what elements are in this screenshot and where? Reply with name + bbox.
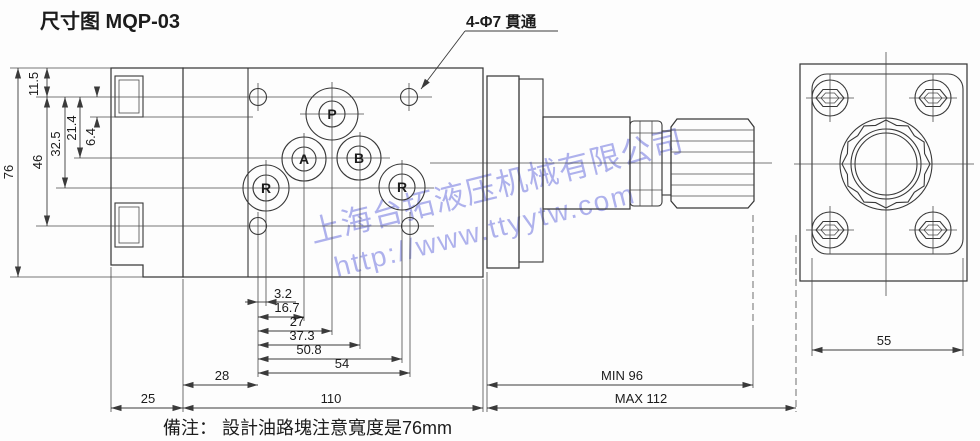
dim-76: 76 (1, 165, 16, 179)
dim-46: 46 (30, 155, 45, 169)
drawing-title: 尺寸图 MQP-03 (40, 10, 180, 33)
dim-11-5: 11.5 (26, 72, 41, 96)
dim-min-96: MIN 96 (601, 368, 643, 383)
engineering-drawing-canvas: 尺寸图 MQP-03 上海台拓液压机械有限公司 http://www.ttyyt… (0, 0, 980, 441)
port-r-right-label: R (397, 179, 407, 195)
dim-37-3: 37.3 (289, 328, 314, 343)
hole-callout-label: 4-Φ7 貫通 (466, 12, 537, 31)
flange-end-view: 55 (794, 52, 974, 356)
dim-3-2: 3.2 (274, 286, 292, 301)
drawing-note: 備注： 設計油路塊注意寬度是76mm (163, 418, 452, 438)
dim-50-8: 50.8 (296, 342, 321, 357)
dim-32-5: 32.5 (48, 131, 63, 156)
port-p-label: P (327, 106, 336, 122)
dim-25: 25 (141, 391, 155, 406)
adjustment-knob (671, 119, 754, 208)
left-dimensions: 76 11.5 46 32.5 21.4 6.4 (1, 68, 143, 277)
dim-6-4: 6.4 (83, 128, 98, 146)
dim-max-112: MAX 112 (615, 391, 668, 406)
dim-110: 110 (321, 391, 342, 406)
adjustment-assembly (487, 76, 796, 412)
dim-27: 27 (290, 314, 304, 329)
dim-54: 54 (335, 356, 349, 371)
bottom-dimensions: 3.2 16.7 27 37.3 50.8 54 28 MIN 96 25 11… (111, 267, 796, 412)
dim-16-7: 16.7 (274, 300, 299, 315)
dim-21-4: 21.4 (64, 115, 79, 140)
dim-28: 28 (215, 368, 229, 383)
dim-55: 55 (877, 333, 891, 348)
port-b-label: B (354, 150, 364, 166)
port-r-left-label: R (261, 180, 271, 196)
hole-callout: 4-Φ7 貫通 (421, 12, 558, 89)
port-a-label: A (299, 151, 309, 167)
callout-leader-arrow (421, 31, 465, 89)
flange-outer-plate (800, 64, 967, 281)
mounting-bracket (111, 68, 183, 277)
